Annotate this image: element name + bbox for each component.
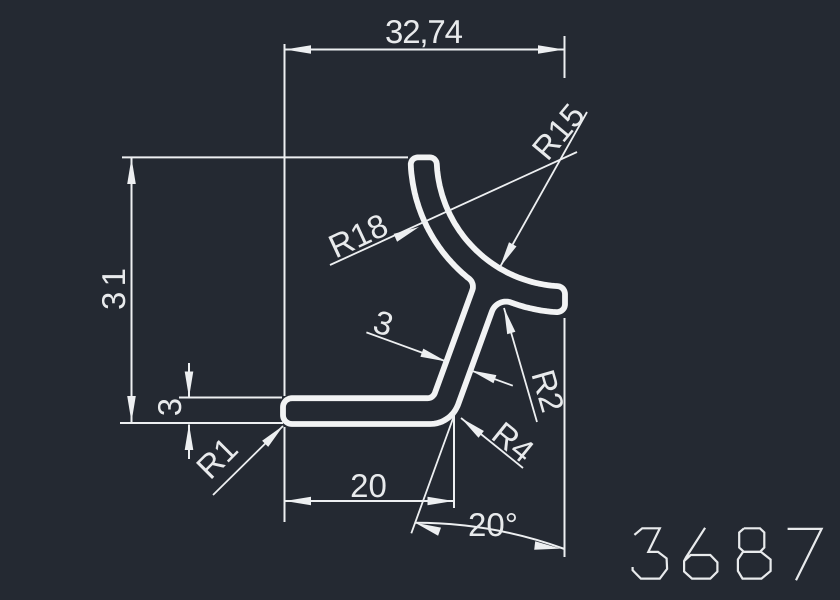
svg-text:20: 20	[350, 467, 387, 504]
svg-text:32,74: 32,74	[385, 13, 463, 50]
svg-text:20°: 20°	[468, 506, 518, 543]
svg-text:3: 3	[151, 398, 188, 416]
